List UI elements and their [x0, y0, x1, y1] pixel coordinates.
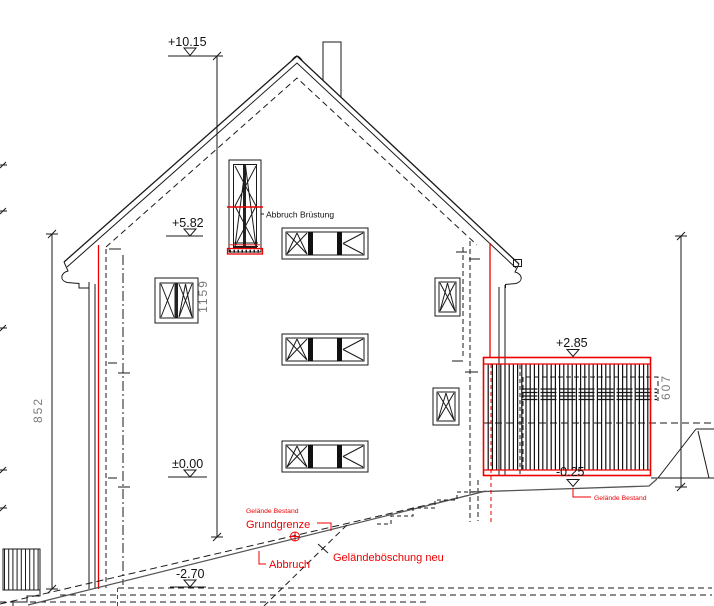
- site-annotations: Gelände Bestand Grundgrenze Abbruch Gelä…: [246, 508, 444, 571]
- window-square-left: [155, 278, 198, 323]
- marker-basement-triangle: [184, 580, 196, 587]
- marker-terrace-base: -0.25: [556, 465, 585, 487]
- terrain: [0, 423, 714, 606]
- dim-text-607: 607: [659, 374, 673, 400]
- marker-terrace-top-triangle: [567, 350, 579, 357]
- marker-terrace-top: +2.85: [556, 336, 588, 357]
- house-elevation-svg: Abbruch Brüstung: [0, 0, 714, 606]
- marker-basement-value: -2.70: [176, 567, 205, 581]
- terrace-fence: +2.85 -0.25 Gelände Bestand: [484, 336, 659, 524]
- demolition-leader: [259, 551, 266, 564]
- marker-terrace-base-value: -0.25: [556, 465, 585, 479]
- red-parapet-band: [228, 249, 263, 255]
- existing-grade-left-label: Gelände Bestand: [246, 508, 299, 515]
- grade-line-under-terrace: [470, 479, 657, 492]
- marker-eave: +5.82: [166, 216, 204, 236]
- parapet-demolition-label: Abbruch Brüstung: [266, 210, 334, 220]
- gutter-right: [506, 264, 522, 288]
- existing-grade-right-label: Gelände Bestand: [594, 495, 647, 502]
- marker-basement: -2.70: [170, 567, 206, 587]
- roof-outer-line: [64, 56, 519, 264]
- sheet-edge-ticks: [0, 162, 7, 511]
- property-line-label: Grundgrenze: [246, 519, 310, 531]
- elevation-drawing-sheet: Abbruch Brüstung: [0, 0, 714, 606]
- roof-underside-dashed: [106, 78, 477, 247]
- marker-ridge-value: +10.15: [168, 35, 207, 49]
- window-3part-row-middle: [282, 334, 368, 365]
- new-embankment-leader: [318, 544, 328, 553]
- marker-floor-value: ±0.00: [172, 457, 203, 471]
- windows: Abbruch Brüstung: [155, 160, 460, 472]
- new-embankment-label: Geländeböschung neu: [333, 552, 444, 564]
- window-small-right-lower: [433, 388, 459, 425]
- marker-ridge-triangle: [184, 48, 196, 56]
- marker-floor-triangle: [184, 470, 196, 477]
- dim-text-852: 852: [31, 397, 45, 423]
- dim-text-1159: 1159: [196, 279, 210, 313]
- basement-outline: [0, 588, 712, 606]
- floor-marks-left: [108, 249, 130, 487]
- berm-right: [651, 429, 714, 478]
- grade-right-leader: [573, 488, 591, 497]
- marker-eave-value: +5.82: [172, 216, 204, 230]
- window-small-right-upper: [435, 278, 460, 316]
- dimension-lines: 852 1159 607: [0, 52, 687, 593]
- gutter-left: [62, 262, 89, 288]
- marker-ridge: +10.15: [168, 35, 216, 56]
- fence-red-frame: [484, 358, 651, 476]
- marker-floor: ±0.00: [168, 457, 207, 477]
- marker-terrace-base-triangle: [567, 480, 579, 487]
- roof: [62, 42, 522, 288]
- marker-terrace-top-value: +2.85: [556, 336, 588, 350]
- demolition-label: Abbruch: [269, 559, 310, 571]
- marker-eave-triangle: [184, 229, 196, 236]
- window-3part-row-top: [282, 228, 368, 259]
- window-tall-staircase: Abbruch Brüstung: [227, 160, 334, 254]
- window-3part-row-bottom: [282, 441, 368, 472]
